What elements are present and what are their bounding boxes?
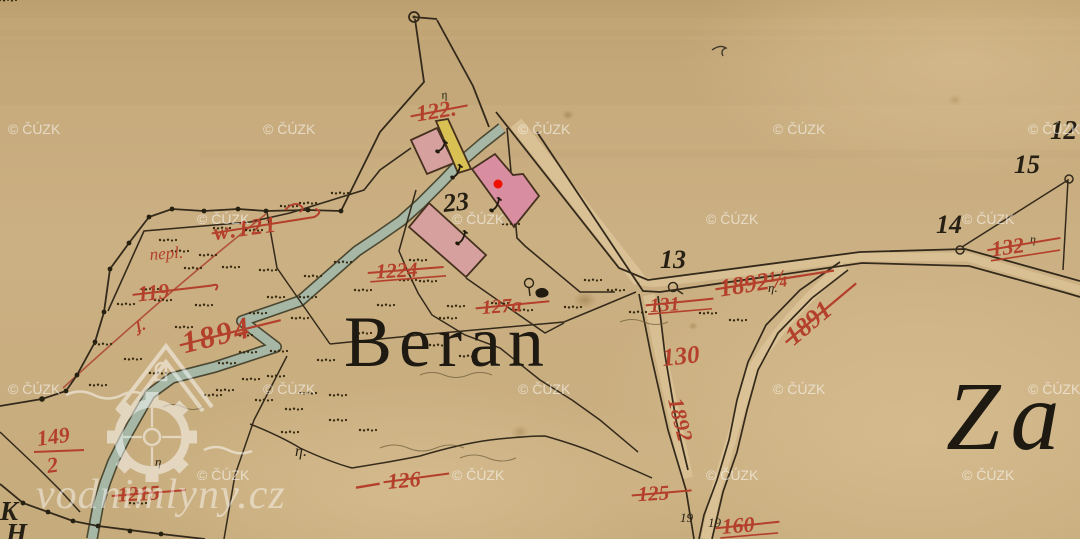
svg-text:© ČÚZK: © ČÚZK xyxy=(8,381,61,397)
svg-text:© ČÚZK: © ČÚZK xyxy=(263,381,316,397)
svg-text:14: 14 xyxy=(936,210,962,239)
svg-text:© ČÚZK: © ČÚZK xyxy=(1028,121,1080,137)
svg-text:© ČÚZK: © ČÚZK xyxy=(773,381,826,397)
svg-text:nepl.: nepl. xyxy=(149,243,184,264)
svg-text:© ČÚZK: © ČÚZK xyxy=(197,467,250,483)
svg-text:© ČÚZK: © ČÚZK xyxy=(197,211,250,227)
svg-text:H: H xyxy=(5,518,28,539)
svg-text:© ČÚZK: © ČÚZK xyxy=(452,211,505,227)
svg-text:© ČÚZK: © ČÚZK xyxy=(263,121,316,137)
svg-text:© ČÚZK: © ČÚZK xyxy=(452,467,505,483)
svg-text:© ČÚZK: © ČÚZK xyxy=(706,211,759,227)
svg-text:© ČÚZK: © ČÚZK xyxy=(962,467,1015,483)
svg-text:Za: Za xyxy=(946,363,1070,471)
svg-text:13: 13 xyxy=(660,245,686,274)
svg-text:© ČÚZK: © ČÚZK xyxy=(518,381,571,397)
svg-text:19: 19 xyxy=(680,510,694,525)
svg-text:© ČÚZK: © ČÚZK xyxy=(8,121,61,137)
svg-text:© ČÚZK: © ČÚZK xyxy=(518,121,571,137)
svg-text:15: 15 xyxy=(1014,150,1040,179)
svg-text:© ČÚZK: © ČÚZK xyxy=(962,211,1015,227)
svg-text:130: 130 xyxy=(661,341,702,372)
svg-text:© ČÚZK: © ČÚZK xyxy=(706,467,759,483)
svg-text:ƞ.: ƞ. xyxy=(295,443,307,460)
svg-text:© ČÚZK: © ČÚZK xyxy=(1028,381,1080,397)
svg-text:149: 149 xyxy=(35,422,71,451)
svg-text:© ČÚZK: © ČÚZK xyxy=(773,121,826,137)
